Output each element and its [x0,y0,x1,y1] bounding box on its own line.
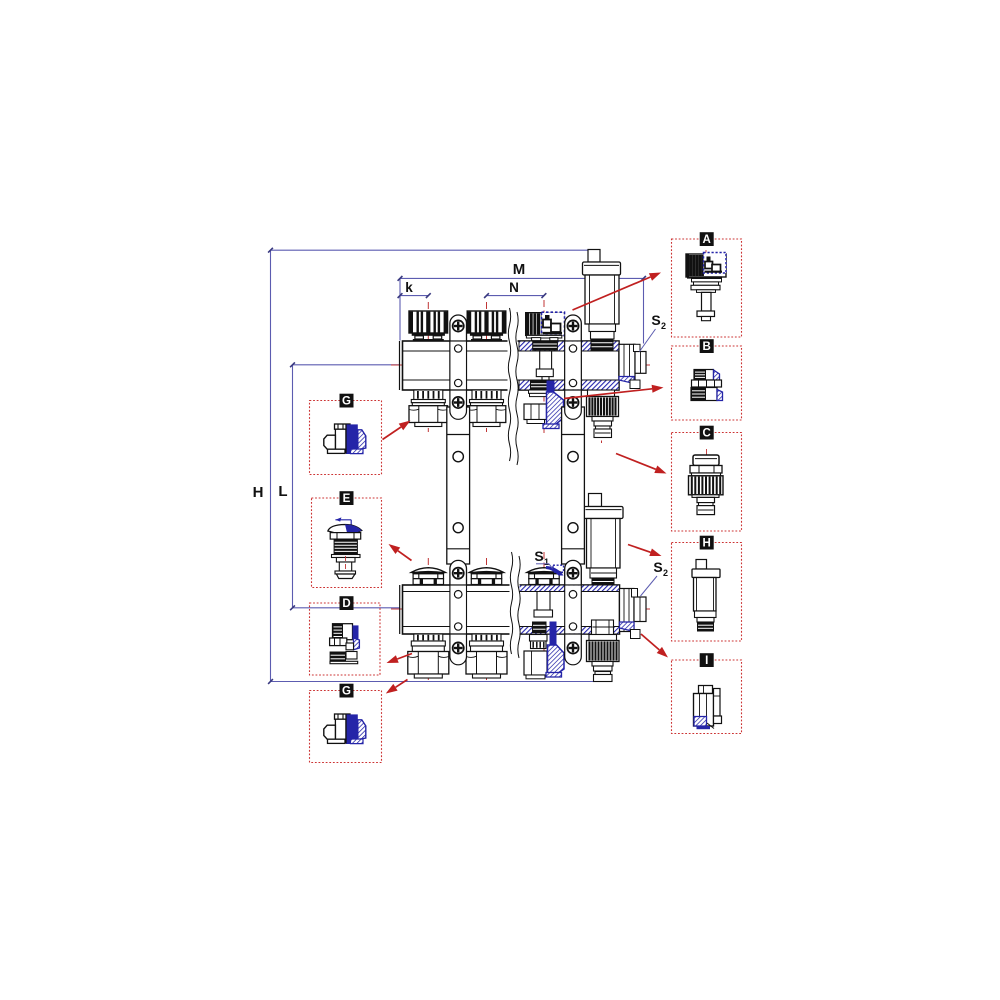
svg-text:H: H [253,484,264,501]
svg-text:S: S [534,548,543,564]
svg-text:S: S [653,559,662,575]
svg-text:G: G [342,395,351,407]
svg-text:E: E [343,493,351,505]
svg-text:A: A [703,234,711,246]
svg-text:I: I [705,655,708,667]
svg-text:D: D [342,598,350,610]
svg-text:L: L [278,483,287,500]
svg-text:M: M [513,261,526,278]
svg-text:2: 2 [663,568,668,578]
svg-text:S: S [651,312,660,328]
svg-text:2: 2 [661,321,666,331]
svg-text:C: C [703,427,711,439]
svg-text:B: B [703,341,711,353]
svg-text:k: k [405,280,413,295]
svg-text:1: 1 [544,557,549,567]
svg-text:H: H [703,537,711,549]
svg-text:G: G [342,685,351,697]
svg-text:N: N [509,280,519,295]
